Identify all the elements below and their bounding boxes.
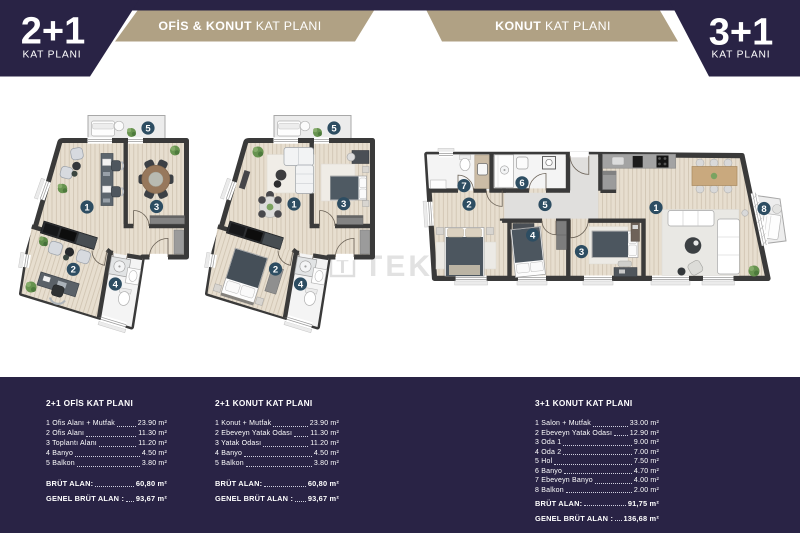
svg-text:5: 5 (145, 123, 151, 134)
svg-text:2+1: 2+1 (21, 11, 85, 53)
svg-text:4: 4 (113, 279, 119, 290)
svg-text:1: 1 (653, 203, 659, 214)
svg-text:2: 2 (466, 200, 471, 211)
svg-text:4: 4 (530, 230, 536, 241)
svg-text:OFİS & KONUT KAT PLANI: OFİS & KONUT KAT PLANI (158, 18, 321, 33)
svg-text:KAT PLANI: KAT PLANI (712, 50, 771, 61)
svg-text:3: 3 (154, 202, 159, 213)
svg-text:2: 2 (273, 264, 278, 275)
svg-text:6: 6 (519, 178, 524, 189)
svg-text:3: 3 (579, 247, 584, 258)
svg-text:KONUT KAT PLANI: KONUT KAT PLANI (495, 19, 611, 33)
svg-text:3: 3 (341, 199, 346, 210)
svg-text:1: 1 (84, 202, 90, 213)
svg-text:3+1: 3+1 (709, 12, 773, 54)
svg-text:2: 2 (71, 265, 76, 276)
svg-text:KAT PLANI: KAT PLANI (23, 50, 82, 61)
svg-text:4: 4 (298, 279, 304, 290)
svg-text:8: 8 (761, 204, 766, 215)
svg-text:5: 5 (331, 123, 337, 134)
svg-text:7: 7 (461, 181, 466, 192)
svg-text:5: 5 (542, 200, 548, 211)
svg-text:1: 1 (291, 199, 297, 210)
